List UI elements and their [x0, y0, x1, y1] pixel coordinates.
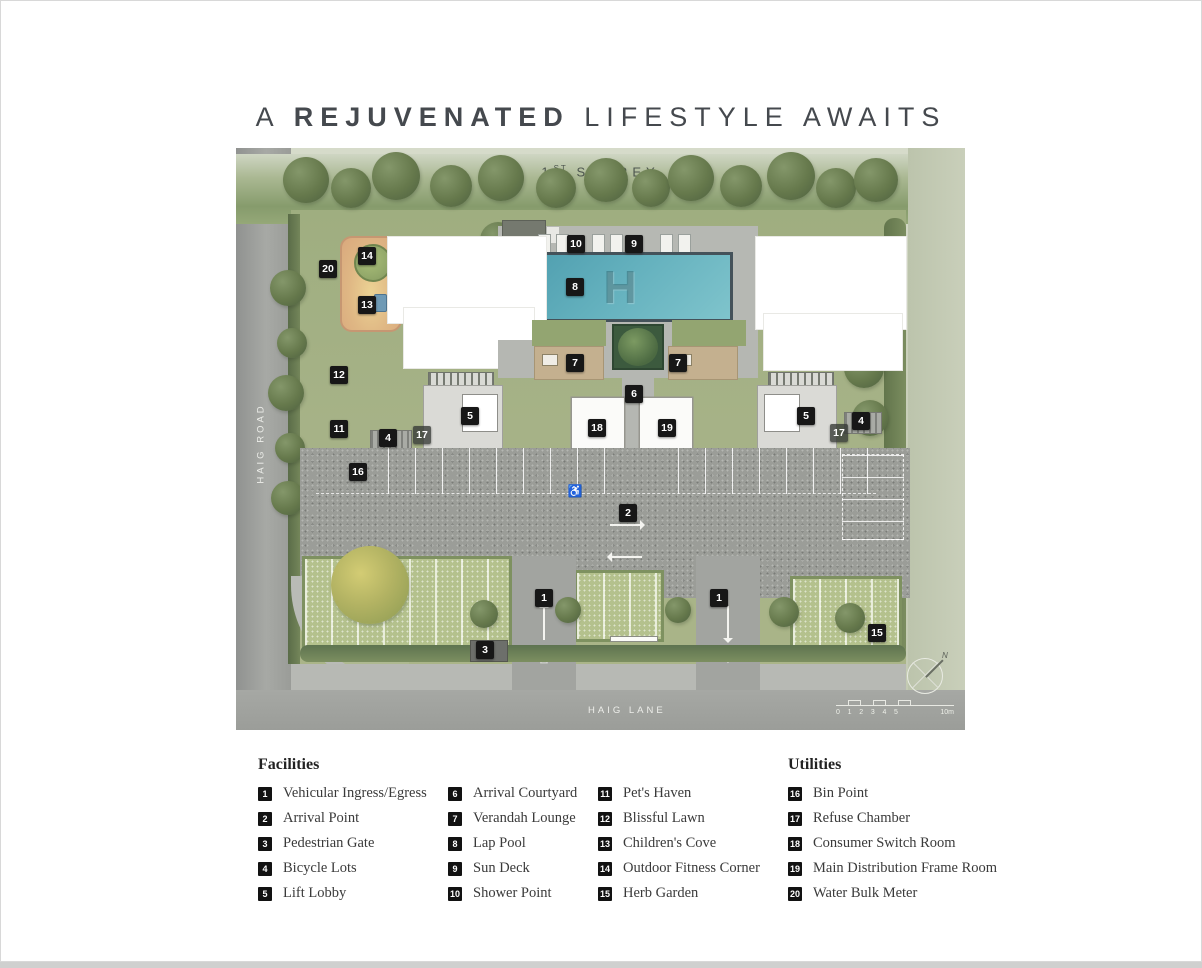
legend-item: 10Shower Point [448, 881, 577, 906]
shrub [555, 597, 581, 623]
legend-item: 4Bicycle Lots [258, 856, 427, 881]
scale-step [848, 700, 861, 706]
legend-item-label: Herb Garden [623, 885, 698, 902]
legend-item: 13Children's Cove [598, 831, 760, 856]
map-marker-13: 13 [358, 296, 376, 314]
scale-tick: 2 [859, 709, 863, 716]
legend-number-badge: 1 [258, 787, 272, 801]
legend-item: 6Arrival Courtyard [448, 781, 577, 806]
tree [268, 375, 304, 411]
tree [277, 328, 307, 358]
scale-tick: 4 [882, 709, 886, 716]
building-block-right-lower [764, 314, 902, 370]
map-marker-19: 19 [658, 419, 676, 437]
drive-direction-arrow-right [610, 524, 642, 526]
legend-item-label: Arrival Point [283, 810, 359, 827]
facilities-column-1: 1Vehicular Ingress/Egress2Arrival Point3… [258, 781, 427, 906]
lawn-patch [672, 320, 746, 346]
legend-item: 12Blissful Lawn [598, 806, 760, 831]
compass-north-label: N [942, 651, 948, 660]
egress-arrow [727, 606, 729, 640]
legend-item: 16Bin Point [788, 781, 997, 806]
legend-item: 19Main Distribution Frame Room [788, 856, 997, 881]
tree [720, 165, 762, 207]
legend-number-badge: 8 [448, 837, 462, 851]
yellow-tree [331, 546, 409, 624]
map-marker-5: 5 [461, 407, 479, 425]
tree [816, 168, 856, 208]
legend-number-badge: 3 [258, 837, 272, 851]
legend-number-badge: 16 [788, 787, 802, 801]
site-plan-map: 1ST STOREY [236, 148, 965, 730]
tree [584, 158, 628, 202]
map-marker-4: 4 [379, 429, 397, 447]
legend-number-badge: 7 [448, 812, 462, 826]
title-prefix: A [256, 102, 280, 132]
map-marker-15: 15 [868, 624, 886, 642]
map-marker-17: 17 [830, 424, 848, 442]
pool-monogram: H [603, 260, 636, 314]
legend-number-badge: 5 [258, 887, 272, 901]
lift-core [764, 394, 800, 432]
page-title: A REJUVENATED LIFESTYLE AWAITS [0, 102, 1202, 133]
legend-number-badge: 6 [448, 787, 462, 801]
legend-item-label: Verandah Lounge [473, 810, 576, 827]
tree [283, 157, 329, 203]
compass-needle [925, 659, 943, 677]
map-marker-10: 10 [567, 235, 585, 253]
shrub [470, 600, 498, 628]
parking-bay-line [316, 493, 876, 494]
legend-number-badge: 19 [788, 862, 802, 876]
map-marker-8: 8 [566, 278, 584, 296]
legend-number-badge: 12 [598, 812, 612, 826]
legend-item-label: Outdoor Fitness Corner [623, 860, 760, 877]
legend-number-badge: 18 [788, 837, 802, 851]
lounge-furniture [542, 354, 558, 366]
scale-tick: 0 [836, 709, 840, 716]
lawn-patch [532, 320, 606, 346]
scale-ticks: 012345 [836, 709, 898, 716]
sun-lounger [610, 234, 623, 253]
map-marker-1: 1 [710, 589, 728, 607]
accessible-parking-icon: ♿ [568, 484, 583, 498]
map-marker-11: 11 [330, 420, 348, 438]
legend-item-label: Blissful Lawn [623, 810, 705, 827]
grass-verge-right [908, 148, 965, 690]
legend-number-badge: 15 [598, 887, 612, 901]
scale-tick: 5 [894, 709, 898, 716]
legend-item-label: Sun Deck [473, 860, 530, 877]
map-marker-12: 12 [330, 366, 348, 384]
legend-item-label: Lap Pool [473, 835, 526, 852]
legend-number-badge: 14 [598, 862, 612, 876]
tree [854, 158, 898, 202]
scale-tick: 1 [848, 709, 852, 716]
map-marker-18: 18 [588, 419, 606, 437]
shrub [769, 597, 799, 627]
map-marker-4: 4 [852, 412, 870, 430]
legend-number-badge: 2 [258, 812, 272, 826]
tree [536, 168, 576, 208]
tree [767, 152, 815, 200]
facilities-column-2: 6Arrival Courtyard7Verandah Lounge8Lap P… [448, 781, 577, 906]
haig-lane-label: HAIG LANE [588, 705, 666, 716]
legend-item: 7Verandah Lounge [448, 806, 577, 831]
map-marker-5: 5 [797, 407, 815, 425]
herb-garden-hedge [300, 645, 906, 662]
utilities-heading: Utilities [788, 756, 841, 774]
compass-icon [907, 658, 943, 694]
turf-parking-middle [574, 570, 664, 642]
legend-item: 8Lap Pool [448, 831, 577, 856]
map-marker-14: 14 [358, 247, 376, 265]
legend-number-badge: 17 [788, 812, 802, 826]
legend-item-label: Bicycle Lots [283, 860, 357, 877]
scale-step [873, 700, 886, 706]
parking-bays-side [842, 454, 904, 540]
legend-item-label: Shower Point [473, 885, 552, 902]
shrub [665, 597, 691, 623]
map-marker-7: 7 [566, 354, 584, 372]
legend-item-label: Main Distribution Frame Room [813, 860, 997, 877]
tree [270, 270, 306, 306]
tree [632, 169, 670, 207]
tree [372, 152, 420, 200]
legend-number-badge: 13 [598, 837, 612, 851]
title-emphasis: REJUVENATED [294, 102, 570, 132]
legend-item: 11Pet's Haven [598, 781, 760, 806]
legend-item: 2Arrival Point [258, 806, 427, 831]
legend-item: 15Herb Garden [598, 881, 760, 906]
legend-item-label: Consumer Switch Room [813, 835, 956, 852]
legend-item: 5Lift Lobby [258, 881, 427, 906]
legend-item-label: Arrival Courtyard [473, 785, 577, 802]
scale-end-label: 10m [940, 709, 954, 716]
map-marker-16: 16 [349, 463, 367, 481]
legend-item-label: Pet's Haven [623, 785, 691, 802]
garden-bench [610, 636, 658, 642]
sun-lounger [592, 234, 605, 253]
legend-item: 20Water Bulk Meter [788, 881, 997, 906]
ingress-arrow [543, 606, 545, 640]
utilities-column: 16Bin Point17Refuse Chamber18Consumer Sw… [788, 781, 997, 906]
sun-lounger [678, 234, 691, 253]
tree [668, 155, 714, 201]
shrub [835, 603, 865, 633]
legend-item: 3Pedestrian Gate [258, 831, 427, 856]
legend-item: 14Outdoor Fitness Corner [598, 856, 760, 881]
tree [430, 165, 472, 207]
legend-number-badge: 9 [448, 862, 462, 876]
drive-direction-arrow-left [610, 556, 642, 558]
scale-bar: 012345 10m [836, 696, 956, 722]
facilities-column-3: 11Pet's Haven12Blissful Lawn13Children's… [598, 781, 760, 906]
tree [478, 155, 524, 201]
tree [331, 168, 371, 208]
arrival-courtyard-tree [612, 324, 664, 370]
map-marker-2: 2 [619, 504, 637, 522]
map-marker-7: 7 [669, 354, 687, 372]
legend-number-badge: 11 [598, 787, 612, 801]
sidewalk [291, 664, 906, 690]
facilities-heading: Facilities [258, 756, 319, 774]
legend-item-label: Bin Point [813, 785, 868, 802]
haig-road-label: HAIG ROAD [256, 389, 267, 499]
scale-tick: 3 [871, 709, 875, 716]
legend-item: 18Consumer Switch Room [788, 831, 997, 856]
legend-number-badge: 20 [788, 887, 802, 901]
title-suffix: LIFESTYLE AWAITS [584, 102, 946, 132]
map-marker-1: 1 [535, 589, 553, 607]
sun-lounger [660, 234, 673, 253]
legend-item-label: Refuse Chamber [813, 810, 910, 827]
legend-item: 9Sun Deck [448, 856, 577, 881]
legend-item-label: Children's Cove [623, 835, 716, 852]
legend-item-label: Water Bulk Meter [813, 885, 917, 902]
map-marker-6: 6 [625, 385, 643, 403]
map-marker-17: 17 [413, 426, 431, 444]
scale-step [898, 700, 911, 706]
legend-number-badge: 10 [448, 887, 462, 901]
legend-item-label: Vehicular Ingress/Egress [283, 785, 427, 802]
legend-item: 17Refuse Chamber [788, 806, 997, 831]
map-marker-20: 20 [319, 260, 337, 278]
site-plan-page: A REJUVENATED LIFESTYLE AWAITS 1ST STORE… [0, 0, 1202, 968]
map-marker-3: 3 [476, 641, 494, 659]
legend-item-label: Pedestrian Gate [283, 835, 374, 852]
legend-item: 1Vehicular Ingress/Egress [258, 781, 427, 806]
legend-item-label: Lift Lobby [283, 885, 346, 902]
legend-number-badge: 4 [258, 862, 272, 876]
map-marker-9: 9 [625, 235, 643, 253]
